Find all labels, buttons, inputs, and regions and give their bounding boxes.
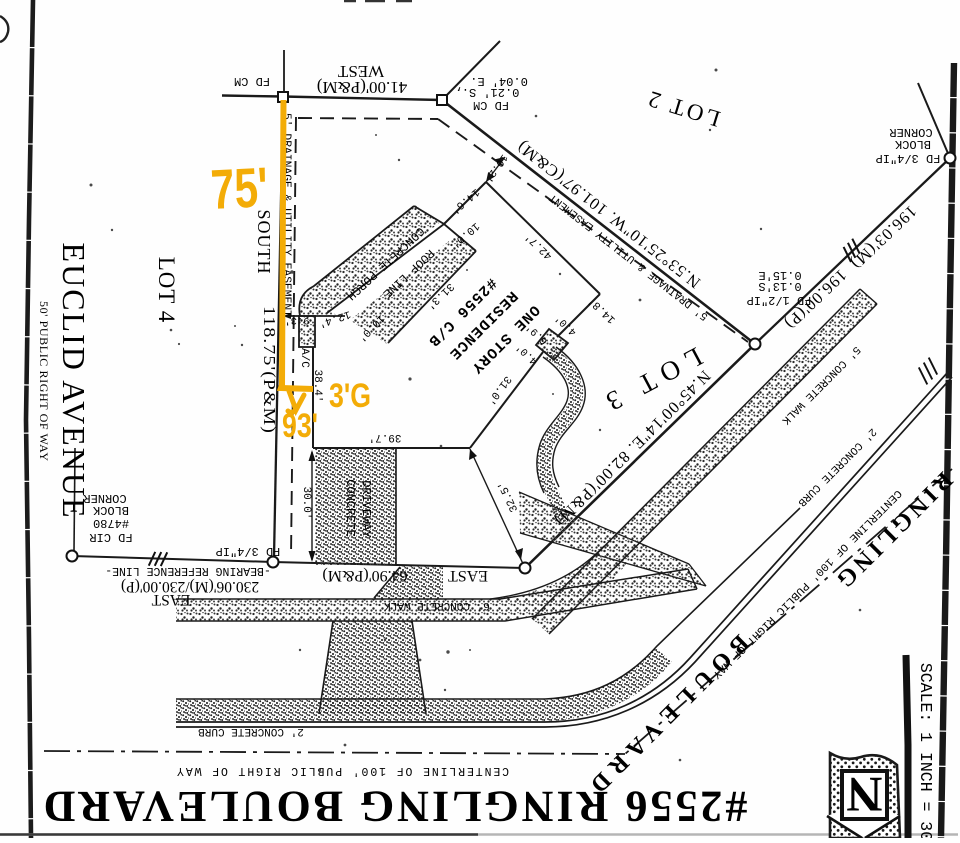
svg-text:A/C: A/C [298,348,310,368]
svg-text:50' PUBLIC RIGHT OF WAY: 50' PUBLIC RIGHT OF WAY [37,301,51,461]
svg-text:-BEARING REFERENCE LINE-: -BEARING REFERENCE LINE- [105,564,271,577]
svg-text:FD CM: FD CM [234,74,270,88]
svg-text:SCALE: 1 INCH = 30: SCALE: 1 INCH = 30 [916,663,935,838]
svg-text:0.13'S: 0.13'S [758,279,801,293]
svg-text:30.0': 30.0' [300,486,312,519]
svg-text:EAST: EAST [448,567,488,584]
svg-text:64.90'(P&M): 64.90'(P&M) [322,567,407,584]
svg-text:EUCLID AVENUE: EUCLID AVENUE [56,243,92,520]
svg-text:#2556 RINGLING BOULEVARD: #2556 RINGLING BOULEVARD [41,782,748,831]
svg-text:93': 93' [282,407,318,445]
svg-text:DRIVEWAY: DRIVEWAY [359,480,373,538]
svg-text:FD 1/2"IP: FD 1/2"IP [747,293,812,307]
svg-text:6' CONCRETE WALK: 6' CONCRETE WALK [384,599,490,611]
svg-text:N: N [846,767,882,823]
svg-text:CENTERLINE OF 100' PUBLIC RIGH: CENTERLINE OF 100' PUBLIC RIGHT OF WAY [177,764,509,777]
svg-text:9.3': 9.3' [284,314,309,326]
svg-text:FD CM: FD CM [473,98,509,112]
svg-text:3'G: 3'G [329,377,371,415]
svg-text:2' CONCRETE CURB: 2' CONCRETE CURB [198,725,304,737]
svg-text:BLOCK: BLOCK [894,137,931,151]
svg-text:#4780: #4780 [93,516,129,530]
svg-text:41.00'(P&M): 41.00'(P&M) [317,78,407,97]
svg-text:CORNER: CORNER [889,125,932,139]
svg-text:FD 3/4"IP: FD 3/4"IP [876,151,941,165]
svg-text:0.21' S.,: 0.21' S., [455,85,520,99]
svg-text:BLOCK: BLOCK [92,503,129,517]
svg-text:FD 3/4"IP: FD 3/4"IP [216,544,281,558]
svg-text:EAST: EAST [151,591,190,608]
svg-text:118.75'(P&M): 118.75'(P&M) [260,306,279,434]
svg-text:LOT 4: LOT 4 [154,257,179,324]
svg-text:75': 75' [209,155,269,221]
svg-text:CONCRETE: CONCRETE [343,479,357,537]
svg-text:SOUTH: SOUTH [254,209,274,274]
svg-text:CORNER: CORNER [83,491,126,505]
svg-text:39.7': 39.7' [368,431,401,443]
svg-text:FD CIR: FD CIR [89,530,132,544]
